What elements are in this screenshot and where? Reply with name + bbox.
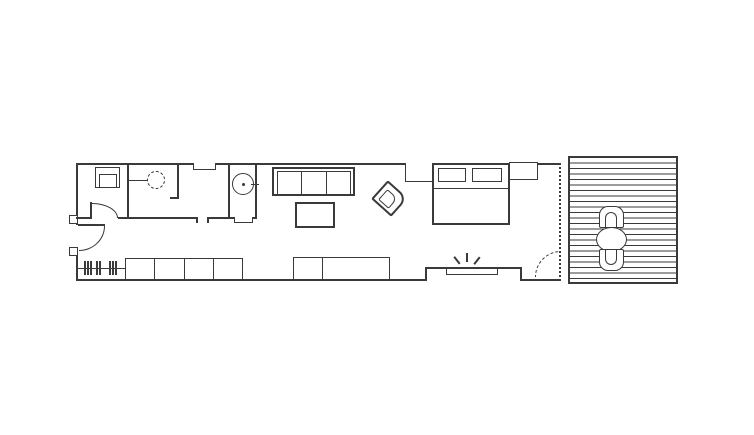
sparkle-ray-middle [466, 253, 468, 262]
bed-blanket-line [433, 188, 509, 189]
cabinet-section [185, 258, 214, 280]
basin-drain-dot [242, 183, 245, 186]
deck-chair-bottom-back [605, 249, 617, 265]
deck-chair-top-back [605, 212, 617, 228]
sofa-seat [277, 171, 302, 195]
sofa-seats [277, 171, 351, 195]
dashed-circle-fixture [147, 171, 165, 189]
coat-rack-tick [84, 261, 86, 275]
sofa-seat [327, 171, 351, 195]
coat-rack-tick [99, 261, 101, 275]
wall-dressing-foot [170, 197, 179, 199]
cabinet-section [214, 258, 243, 280]
cabinet-section [155, 258, 184, 280]
nightstand-right [509, 162, 538, 180]
wall-shelf [193, 163, 216, 170]
coat-rack-tick [90, 261, 92, 275]
doorway-jamb-a [196, 217, 198, 223]
nightstand-left [405, 163, 433, 182]
toilet-bowl [99, 174, 117, 188]
cabinet-row [125, 258, 243, 280]
basin-spout-line [251, 184, 259, 185]
bathroom-threshold [234, 217, 253, 223]
sideboard [293, 257, 390, 280]
pillow-right [472, 168, 502, 182]
coat-rack-tick [109, 261, 111, 275]
door-jamb-bottom [69, 247, 78, 256]
pillow-left [438, 168, 466, 182]
wall-bathroom-left [228, 163, 230, 219]
sideboard-section [293, 257, 323, 280]
cabinet-section [125, 258, 155, 280]
sofa-seat [302, 171, 326, 195]
wall-corridor-top-a [118, 217, 197, 219]
wall-bathroom-right [255, 163, 257, 219]
wall-utility-right [127, 163, 129, 219]
wall-corridor-top-b [208, 217, 229, 219]
coat-rack-tick [112, 261, 114, 275]
media-bench-tray [446, 268, 498, 275]
fixture-arm-line [129, 180, 148, 181]
wall-dressing-right [177, 163, 179, 199]
coat-rack-tick [115, 261, 117, 275]
wall-utility-bottom [76, 217, 90, 219]
coffee-table [295, 202, 335, 228]
coat-rack-tick [96, 261, 98, 275]
coat-rack-tick [87, 261, 89, 275]
sideboard-section [323, 257, 390, 280]
floor-plan-canvas [0, 0, 754, 435]
